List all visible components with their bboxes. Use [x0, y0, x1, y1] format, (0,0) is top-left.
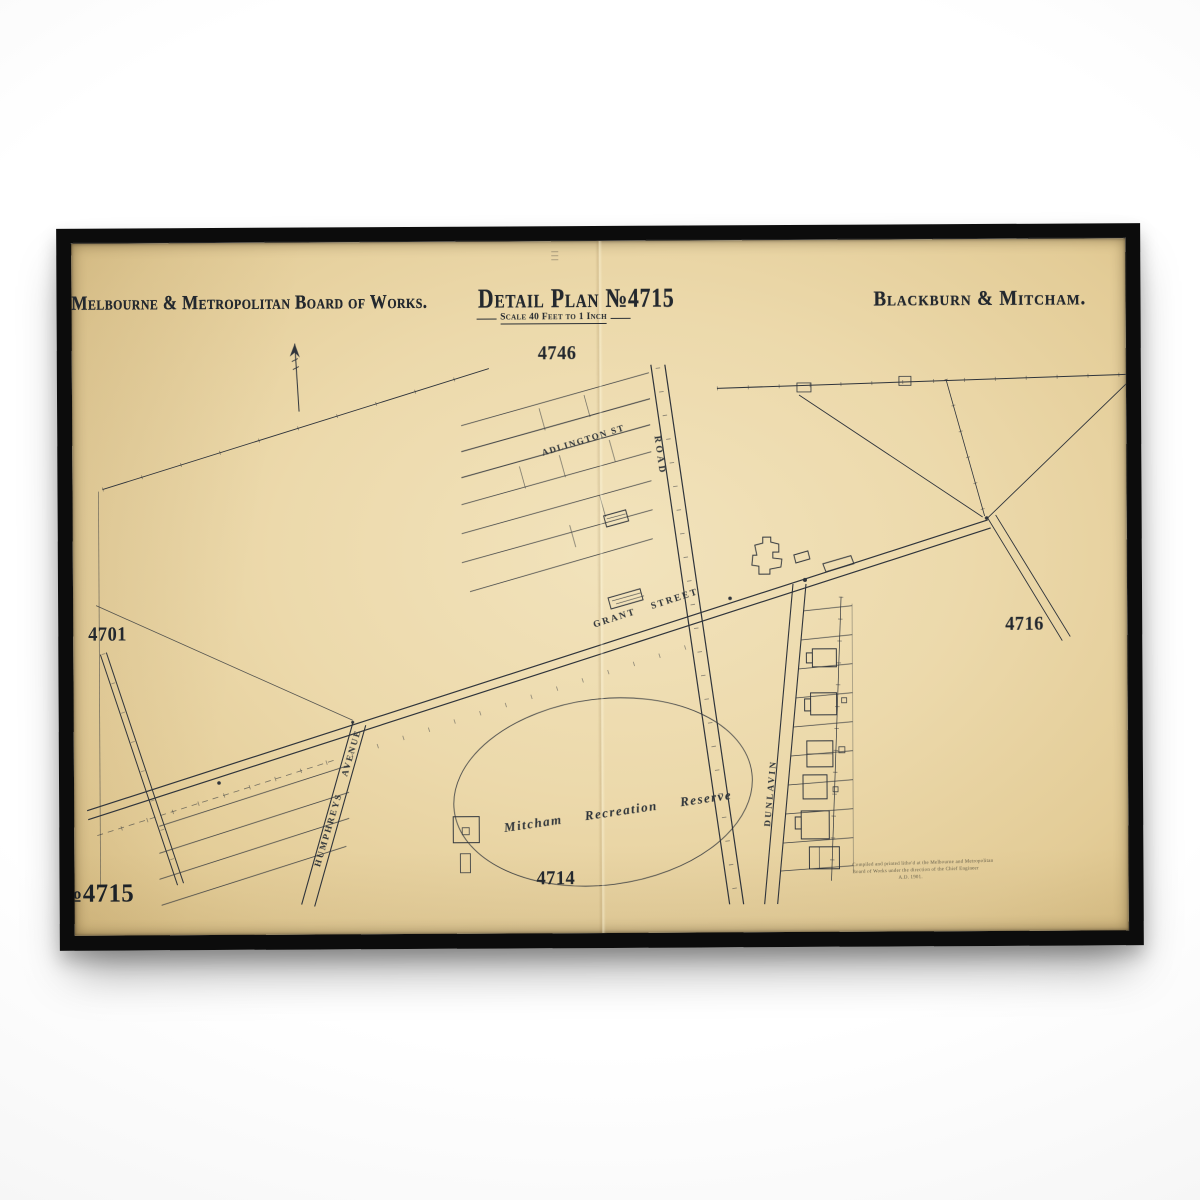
north-arrow-icon [290, 344, 300, 412]
imprint-fine-print: Compiled and printed litho'd at the Melb… [852, 860, 969, 884]
archive-stamp [551, 248, 561, 270]
adjoining-plan-left: 4701 [88, 623, 127, 646]
publisher-title: Melbourne & Metropolitan Board of Works. [71, 291, 427, 316]
map-sheet: Melbourne & Metropolitan Board of Works.… [71, 238, 1129, 936]
adjoining-plan-bottom: 4714 [536, 867, 575, 890]
plan-title: Detail Plan №4715 [478, 283, 675, 315]
plan-title-block: Detail Plan №4715 Scale 40 Feet to 1 Inc… [453, 283, 653, 325]
map-linework [71, 238, 1129, 936]
scale-rule-left [476, 318, 496, 319]
locality-title: Blackburn & Mitcham. [873, 286, 1053, 312]
picture-frame: Melbourne & Metropolitan Board of Works.… [56, 223, 1144, 951]
plan-number-corner: №4715 [71, 878, 134, 908]
map-roads [85, 362, 1129, 907]
adjoining-plan-right: 4716 [1005, 613, 1044, 636]
map-boundaries [95, 369, 492, 885]
scale-rule-right [611, 317, 631, 318]
adjoining-plan-top: 4746 [538, 342, 577, 365]
